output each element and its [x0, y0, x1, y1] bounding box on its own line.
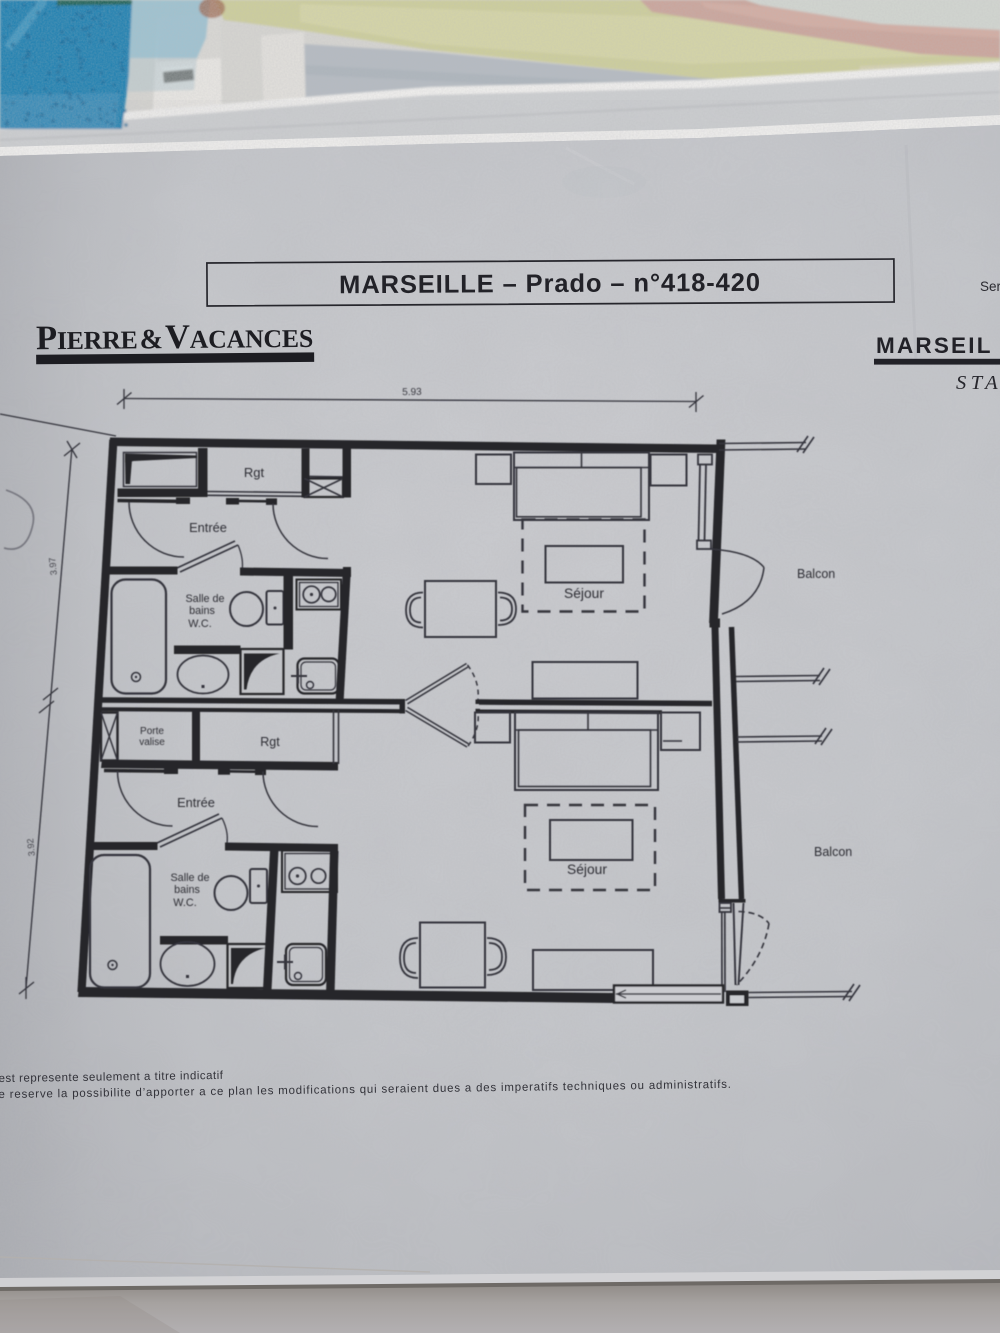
svg-text:Ser: Ser	[980, 279, 1000, 294]
svg-text:Séjour: Séjour	[564, 586, 604, 601]
svg-text:Salle de: Salle de	[185, 593, 224, 605]
svg-text:Balcon: Balcon	[814, 845, 852, 859]
svg-text:MARSEILLE – Prado – n°418-420: MARSEILLE – Prado – n°418-420	[339, 269, 761, 299]
svg-text:MARSEIL: MARSEIL	[876, 333, 993, 358]
svg-text:Séjour: Séjour	[567, 862, 607, 877]
svg-text:bains: bains	[189, 605, 215, 617]
svg-text:Entrée: Entrée	[177, 795, 215, 810]
svg-text:3.97: 3.97	[47, 557, 59, 576]
svg-text:Rgt: Rgt	[244, 465, 265, 480]
svg-text:Salle de: Salle de	[170, 872, 209, 884]
svg-text:Rgt: Rgt	[260, 735, 280, 749]
svg-text:Entrée: Entrée	[189, 520, 227, 535]
svg-text:W.C.: W.C.	[188, 618, 211, 630]
svg-text:3.92: 3.92	[25, 838, 37, 857]
svg-text:Porte: Porte	[140, 726, 164, 737]
svg-text:valise: valise	[139, 737, 165, 748]
svg-text:5.93: 5.93	[402, 387, 422, 398]
svg-text:W.C.: W.C.	[173, 897, 196, 909]
svg-text:STA: STA	[956, 372, 1000, 394]
svg-text:Balcon: Balcon	[797, 567, 835, 581]
svg-text:bains: bains	[174, 884, 200, 896]
